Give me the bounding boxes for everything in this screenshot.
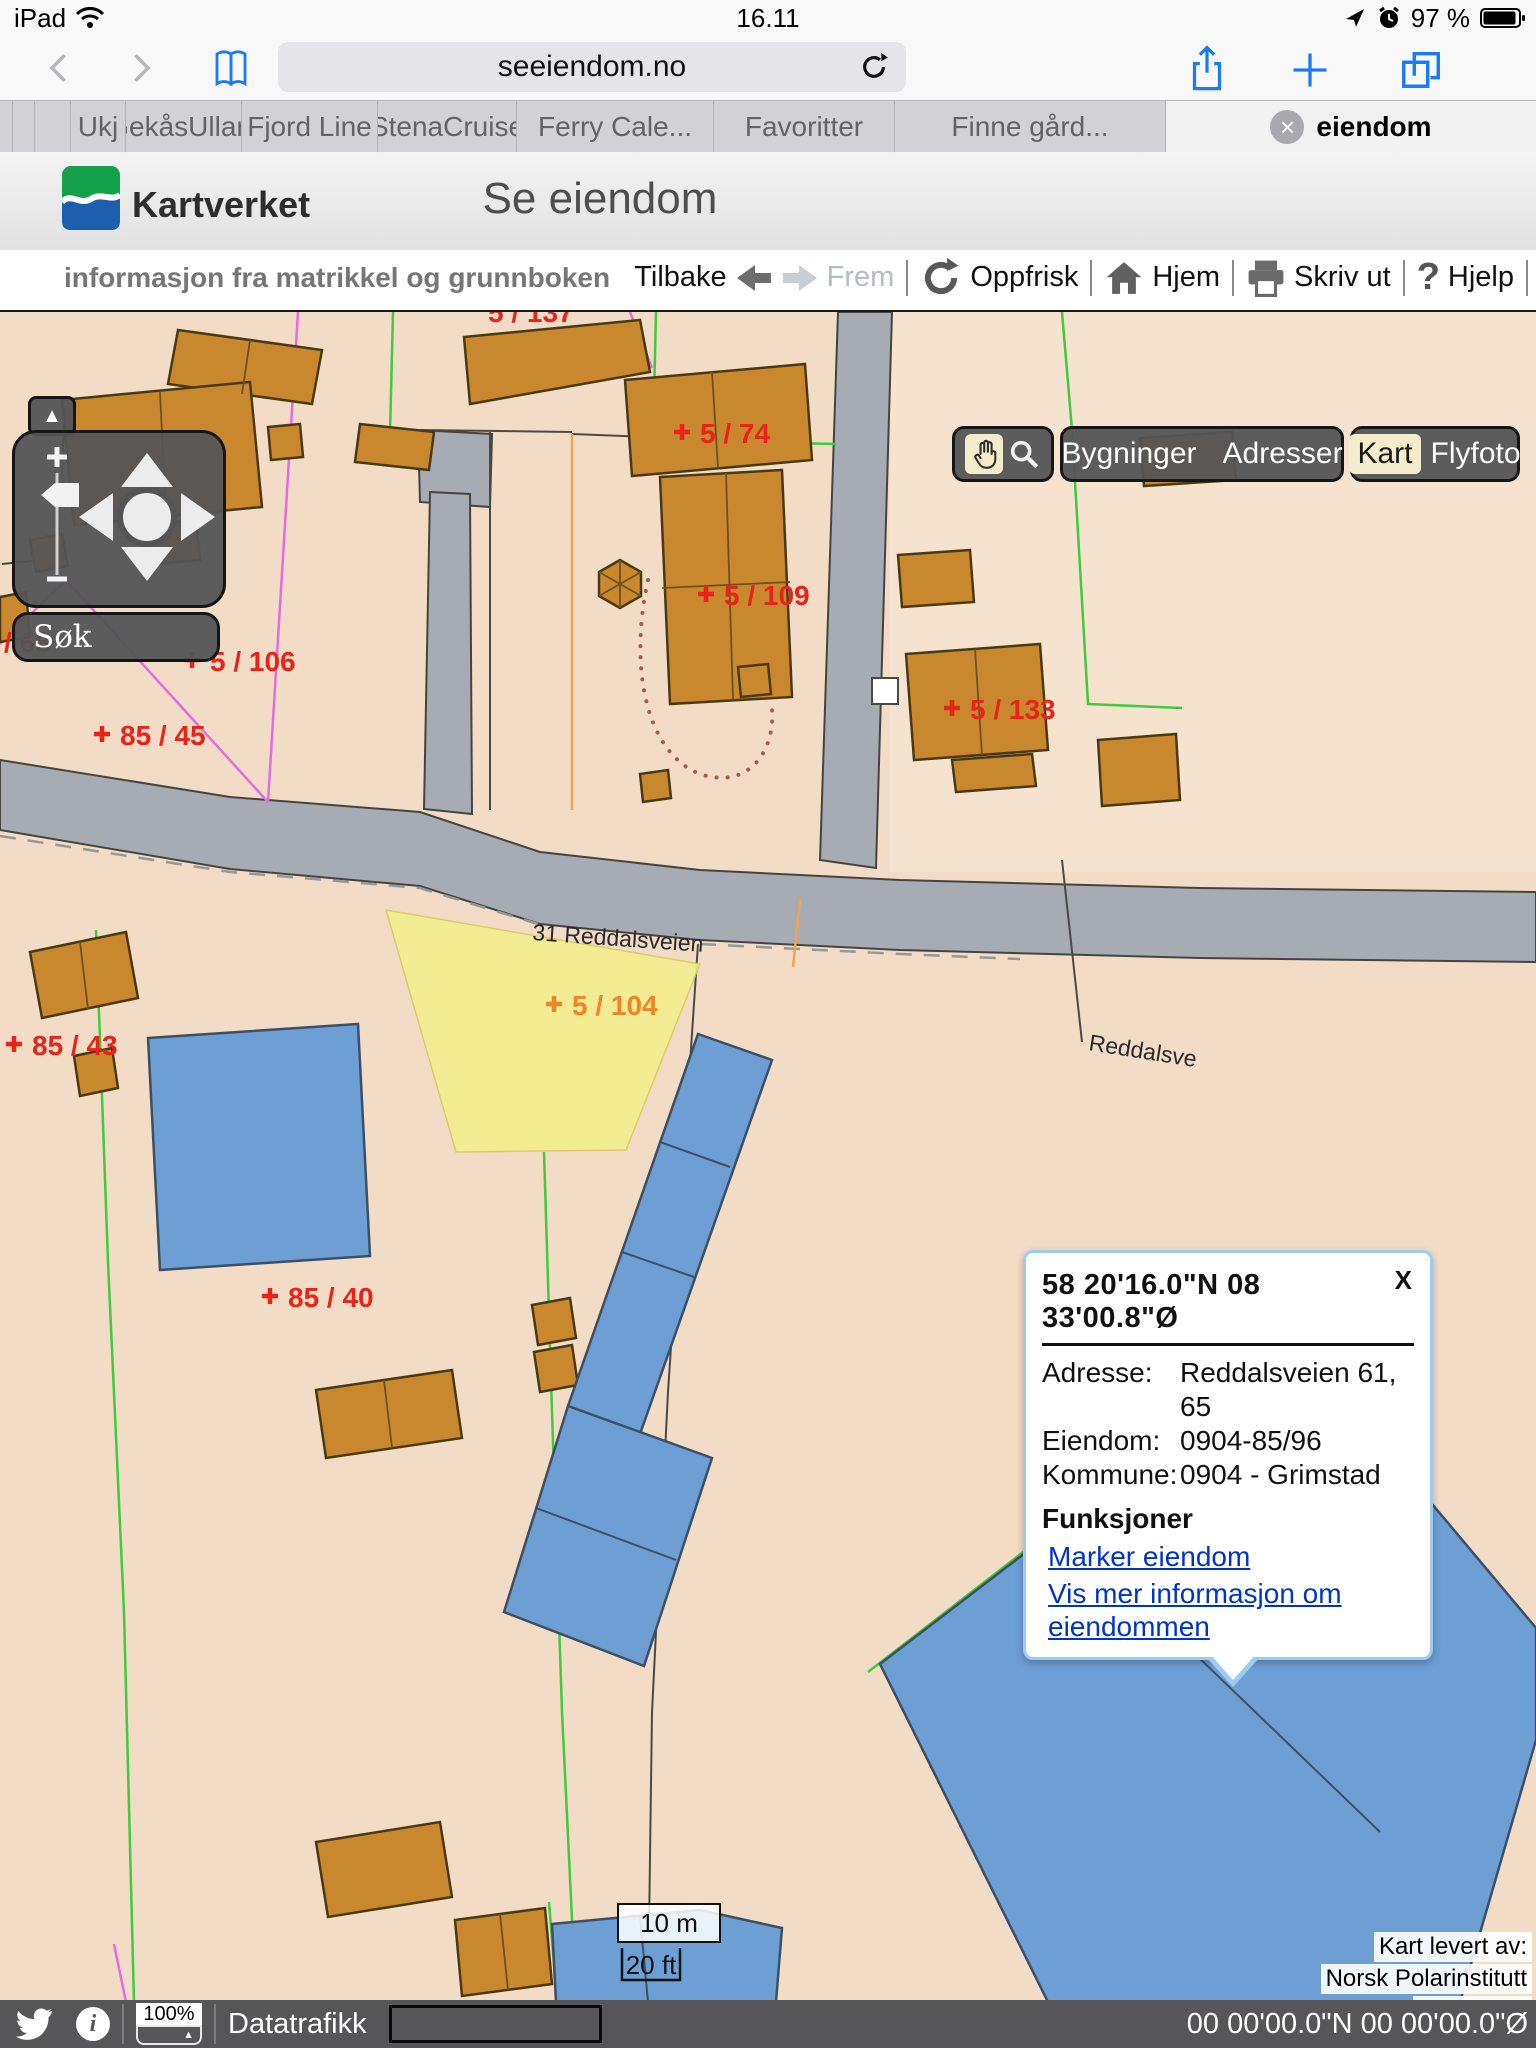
data-traffic-progress-bar (389, 2005, 602, 2043)
tagline: informasjon fra matrikkel og grunnboken (64, 262, 610, 294)
parcel-label-partial: 5 / 137 (488, 312, 574, 328)
site-header: Kartverket Se eiendom (0, 152, 1536, 251)
url-field[interactable]: seeiendom.no (278, 42, 906, 92)
popup-row-property: Eiendom: 0904-85/96 (1042, 1424, 1414, 1458)
functions-heading: Funksjoner (1042, 1502, 1414, 1536)
popup-row-municipality: Kommune: 0904 - Grimstad (1042, 1458, 1414, 1492)
map-viewport[interactable]: 5 / 137 5 / 74 5 / 109 5 / 106 85 / 45 /… (0, 310, 1536, 2002)
attribution-line: Kart levert av: (1374, 1932, 1532, 1962)
tab-eiendom-active[interactable]: × eiendom (1166, 101, 1536, 153)
tab-sliver-2[interactable] (13, 101, 35, 153)
popup-tail-inner (1210, 1654, 1256, 1680)
zoom-in-icon (47, 447, 67, 467)
twitter-icon[interactable] (14, 2007, 54, 2041)
zoom-slider[interactable] (41, 447, 79, 579)
kartverket-logo[interactable]: Kartverket (62, 166, 310, 230)
safari-tab-bar: Ukj GekåsUllar.. Fjord Line StenaCruise … (0, 100, 1536, 153)
pan-right-icon (181, 493, 215, 541)
pan-pad[interactable] (79, 453, 215, 581)
parcel-label: 85 / 43 (32, 1030, 118, 1061)
tabs-icon[interactable] (1398, 46, 1444, 92)
map-nav-panel[interactable] (12, 430, 226, 608)
sub-header: informasjon fra matrikkel og grunnboken … (0, 250, 1536, 310)
print-label[interactable]: Skriv ut (1294, 261, 1391, 294)
addresses-toggle[interactable]: Adresser (1223, 437, 1343, 471)
attribution-line: Norsk Polarinstitutt (1321, 1964, 1532, 1994)
popup-title: 58 20'16.0"N 08 33'00.8"Ø (1042, 1263, 1393, 1335)
forward-arrow-icon[interactable] (781, 264, 819, 292)
dropdown-arrow-icon: ▲ (183, 2029, 194, 2041)
tab-stenacruise[interactable]: StenaCruise (378, 101, 517, 153)
parcel-label: 5 / 106 (210, 646, 296, 677)
highlight-parcel-label: 5 / 104 (572, 990, 658, 1021)
nav-panel-graphics (15, 433, 223, 599)
mark-property-link[interactable]: Marker eiendom (1048, 1540, 1414, 1573)
parcel-label: 5 / 74 (700, 418, 770, 449)
parcel-label: 85 / 40 (288, 1282, 374, 1313)
refresh-label[interactable]: Oppfrisk (970, 261, 1078, 294)
forward-label[interactable]: Frem (827, 261, 895, 294)
data-traffic-label: Datatrafikk (228, 2008, 367, 2041)
forward-button[interactable] (124, 51, 158, 85)
page-title: Se eiendom (430, 174, 770, 224)
scale-metric: 10 m (640, 1908, 698, 1938)
share-icon[interactable] (1185, 44, 1229, 94)
tab-ferrycalendar[interactable]: Ferry Cale... (517, 101, 714, 153)
active-tab-label: eiendom (1316, 111, 1431, 143)
safari-toolbar: seeiendom.no (0, 36, 1536, 100)
pan-center-button (120, 490, 174, 544)
divider (906, 260, 908, 296)
divider (1090, 260, 1092, 296)
hand-icon (970, 439, 998, 469)
pan-down-icon (121, 547, 173, 581)
tab-favoritter[interactable]: Favoritter (714, 101, 895, 153)
street-label-right: Reddalsve (1087, 1029, 1198, 1072)
kartverket-logo-icon (62, 166, 120, 230)
bookmarks-icon[interactable] (210, 47, 252, 89)
layer-toggle-group: Bygninger Adresser (1060, 426, 1344, 482)
search-button[interactable]: Søk (12, 612, 220, 662)
back-button[interactable] (42, 51, 76, 85)
clock-time: 16.11 (0, 3, 1536, 34)
page-toolbar: Tilbake Frem Oppfrisk Hjem Skriv ut ? Hj… (634, 256, 1532, 299)
parcel-label: 5 / 133 (970, 694, 1056, 725)
zoom-slider-handle (41, 483, 79, 507)
refresh-icon[interactable] (920, 257, 962, 299)
tab-fjordline[interactable]: Fjord Line (242, 101, 378, 153)
new-tab-icon[interactable] (1288, 48, 1332, 92)
divider (214, 2004, 216, 2044)
zoom-level-value: 100% (136, 2003, 202, 2025)
close-icon[interactable]: X (1393, 1263, 1414, 1298)
tab-finnegard[interactable]: Finne gård... (895, 101, 1166, 153)
map-attribution: Kart levert av: Norsk Polarinstitutt Kar… (1321, 1932, 1532, 2002)
zoom-level-select[interactable]: 100% ▲ (136, 2003, 202, 2045)
ios-status-bar: iPad 16.11 97 % (0, 0, 1536, 36)
aerial-mode-toggle[interactable]: Flyfoto (1431, 437, 1521, 471)
zoom-tool-button[interactable] (1007, 437, 1041, 471)
cursor-coordinates: 00 00'00.0"N 00 00'00.0"Ø (1187, 2008, 1528, 2041)
tab-gekas[interactable]: GekåsUllar.. (126, 101, 242, 153)
divider (1232, 260, 1234, 296)
tab-sliver-1[interactable] (0, 101, 13, 153)
tab-sliver-3[interactable] (35, 101, 71, 153)
parcel-label: 5 / 109 (724, 580, 810, 611)
map-mode-toggle[interactable]: Kart (1349, 434, 1420, 474)
divider (1403, 260, 1405, 296)
back-label[interactable]: Tilbake (634, 261, 726, 294)
divider (1526, 260, 1528, 296)
magnifier-icon (1013, 443, 1030, 460)
property-popup: 58 20'16.0"N 08 33'00.8"Ø X Adresse: Red… (1023, 1250, 1433, 1660)
map-canvas[interactable]: 5 / 137 5 / 74 5 / 109 5 / 106 85 / 45 /… (0, 312, 1536, 2002)
small-white-building (872, 678, 898, 704)
home-label[interactable]: Hjem (1152, 261, 1220, 294)
buildings-toggle[interactable]: Bygninger (1061, 437, 1196, 471)
map-tool-group (952, 426, 1054, 482)
zoom-dropdown[interactable]: ▲ (136, 2025, 202, 2045)
url-text: seeiendom.no (498, 50, 686, 84)
help-icon[interactable]: ? (1417, 256, 1440, 299)
pan-left-icon (79, 493, 113, 541)
reload-icon[interactable] (858, 51, 890, 83)
info-icon[interactable]: i (76, 2007, 110, 2041)
help-label[interactable]: Hjelp (1448, 261, 1514, 294)
scale-imperial: 20 ft (626, 1950, 677, 1980)
tab-close-icon[interactable]: × (1270, 110, 1304, 144)
more-info-link[interactable]: Vis mer informasjon om eiendommen (1048, 1577, 1414, 1643)
collapse-arrow-icon: ▲ (42, 405, 62, 428)
logo-text: Kartverket (132, 184, 310, 230)
print-icon[interactable] (1246, 259, 1286, 297)
parcel-label: 85 / 45 (120, 720, 206, 751)
divider (1042, 1343, 1414, 1346)
tab-ukjent[interactable]: Ukj (71, 101, 126, 153)
back-arrow-icon[interactable] (735, 264, 773, 292)
basemap-toggle-group: Kart Flyfoto (1350, 426, 1520, 482)
pan-up-icon (121, 453, 173, 487)
bottom-status-bar: i 100% ▲ Datatrafikk 00 00'00.0"N 00 00'… (0, 2000, 1536, 2048)
popup-row-address: Adresse: Reddalsveien 61, 65 (1042, 1356, 1414, 1424)
divider (122, 2004, 124, 2044)
hand-tool-button[interactable] (965, 434, 1003, 474)
home-icon[interactable] (1104, 259, 1144, 297)
